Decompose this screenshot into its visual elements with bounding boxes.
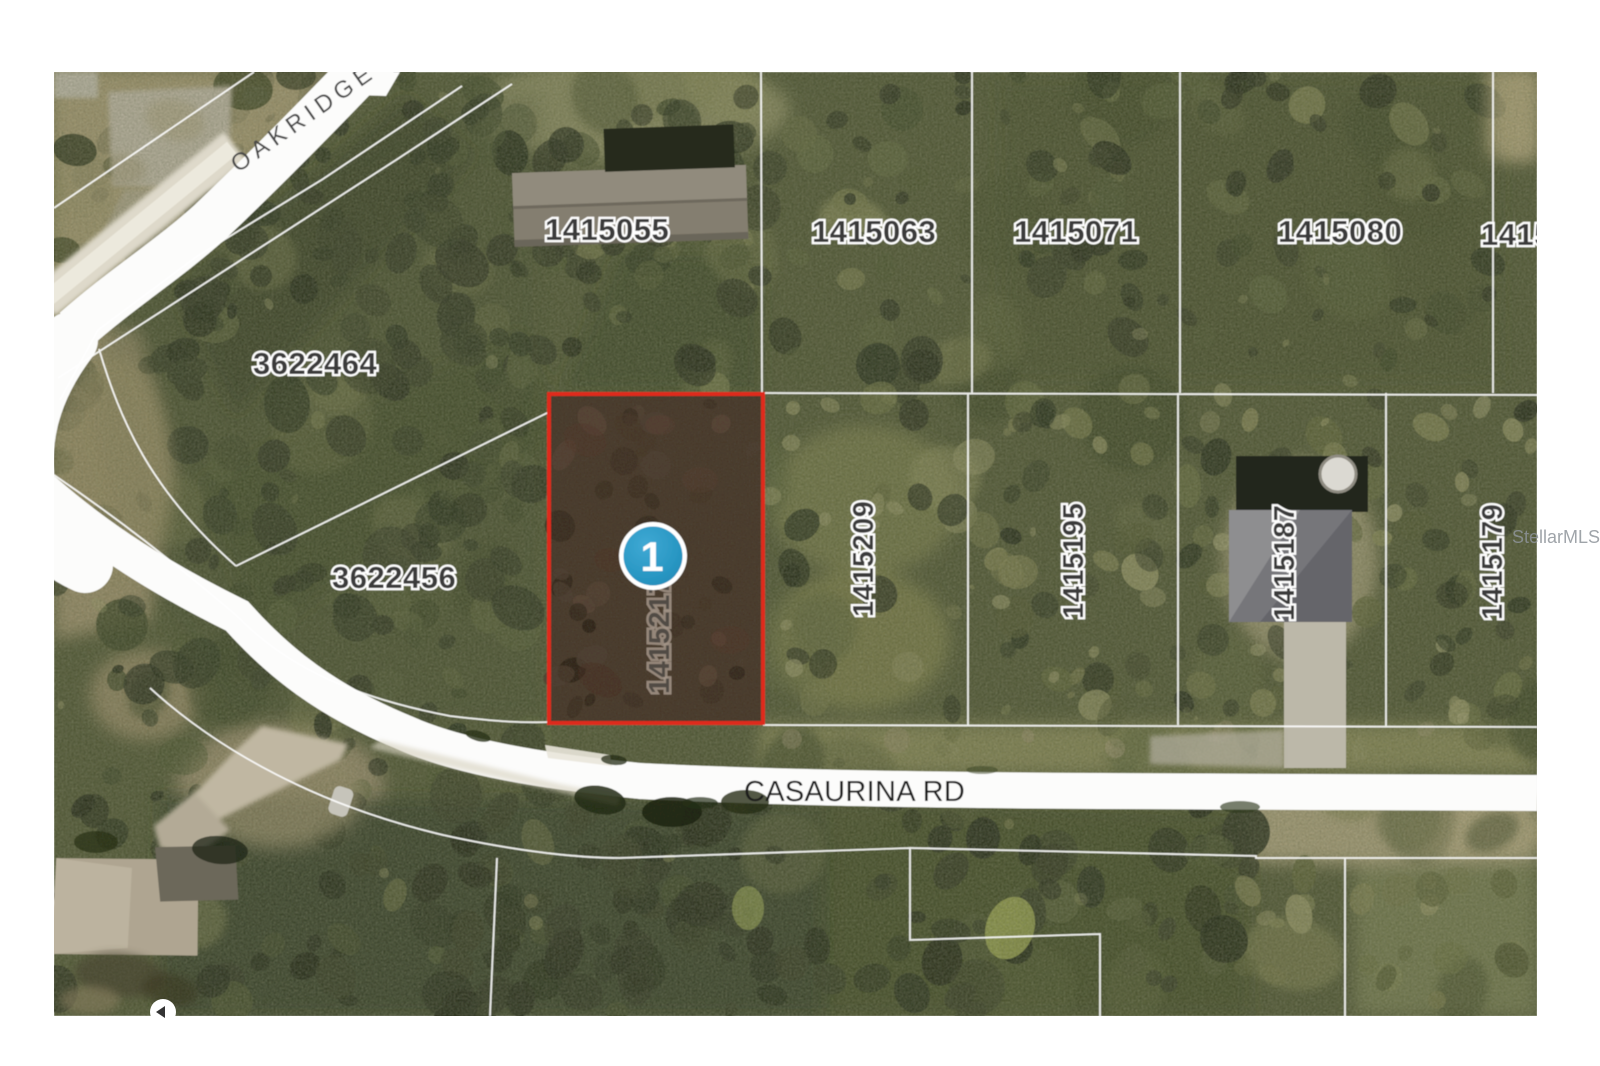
svg-text:1415217: 1415217 (644, 578, 676, 694)
svg-text:1415187: 1415187 (1269, 505, 1301, 621)
svg-text:3622464: 3622464 (253, 346, 377, 381)
svg-text:3622456: 3622456 (332, 560, 456, 595)
svg-text:StellarMLS: StellarMLS (1512, 527, 1600, 547)
svg-text:1415179: 1415179 (1477, 504, 1509, 620)
svg-text:1415080: 1415080 (1278, 214, 1402, 249)
svg-text:1415055: 1415055 (545, 212, 669, 247)
svg-text:CASAURINA RD: CASAURINA RD (744, 776, 965, 808)
svg-text:1: 1 (640, 533, 663, 580)
svg-text:1415071: 1415071 (1014, 214, 1138, 249)
svg-text:1415195: 1415195 (1058, 503, 1090, 619)
svg-text:1415063: 1415063 (812, 214, 936, 249)
svg-text:1415209: 1415209 (848, 501, 880, 617)
